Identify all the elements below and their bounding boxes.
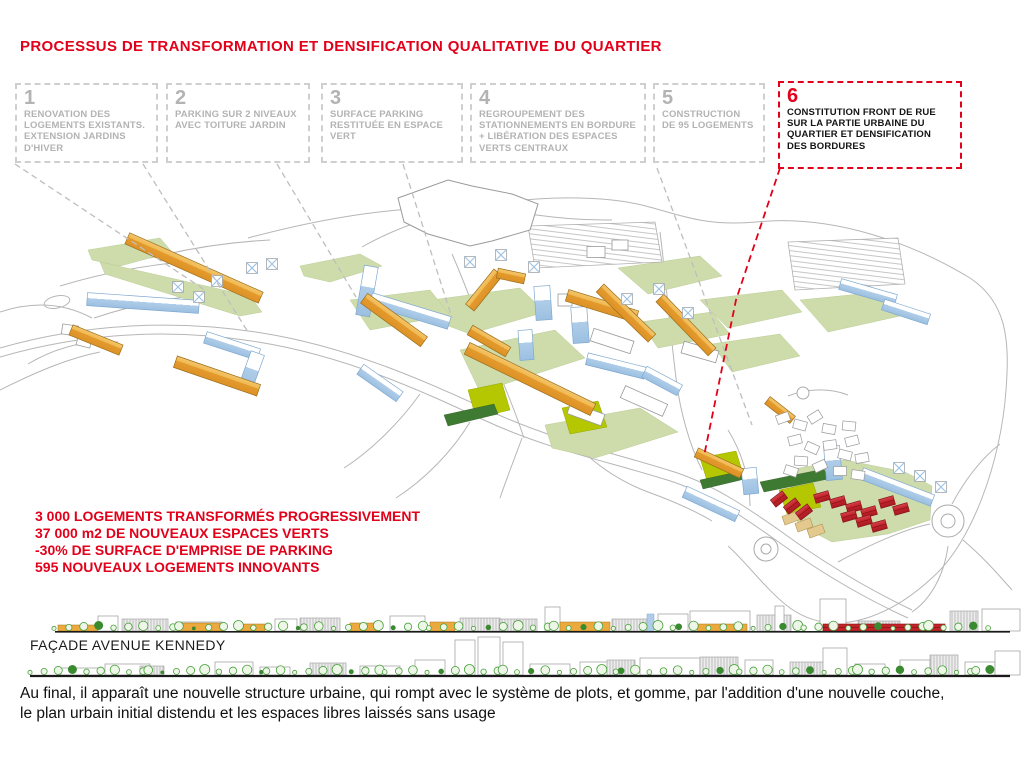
step-box-2: 2 PARKING SUR 2 NIVEAUX AVEC TOITURE JAR… xyxy=(166,83,310,163)
stat-line: 595 NOUVEAUX LOGEMENTS INNOVANTS xyxy=(35,559,420,576)
step-label: SURFACE PARKING RESTITUÉE EN ESPACE VERT xyxy=(330,109,454,143)
step-number: 4 xyxy=(479,87,637,109)
step-number: 1 xyxy=(24,87,149,109)
conclusion-text: Au final, il apparaît une nouvelle struc… xyxy=(20,684,944,723)
conclusion-line-2: le plan urbain initial distendu et les e… xyxy=(20,704,944,724)
parking-lots xyxy=(528,222,905,290)
presentation-slide: PROCESSUS DE TRANSFORMATION ET DENSIFICA… xyxy=(0,0,1024,768)
conclusion-line-1: Au final, il apparaît une nouvelle struc… xyxy=(20,684,944,704)
step-box-4: 4 REGROUPEMENT DES STATIONNEMENTS EN BOR… xyxy=(470,83,646,163)
village-cluster xyxy=(775,410,869,481)
step-box-1: 1 RENOVATION DES LOGEMENTS EXISTANTS. EX… xyxy=(15,83,158,163)
step-label: CONSTRUCTION DE 95 LOGEMENTS xyxy=(662,109,756,131)
step-label: RENOVATION DES LOGEMENTS EXISTANTS. EXTE… xyxy=(24,109,149,154)
step-number: 2 xyxy=(175,87,301,109)
step-number: 6 xyxy=(787,85,953,107)
step-label: PARKING SUR 2 NIVEAUX AVEC TOITURE JARDI… xyxy=(175,109,301,131)
step-number: 3 xyxy=(330,87,454,109)
step-box-5: 5 CONSTRUCTION DE 95 LOGEMENTS xyxy=(653,83,765,163)
step-box-6: 6 CONSTITUTION FRONT DE RUE SUR LA PARTI… xyxy=(778,81,962,169)
stat-line: 37 000 m2 DE NOUVEAUX ESPACES VERTS xyxy=(35,525,420,542)
stat-line: -30% DE SURFACE D'EMPRISE DE PARKING xyxy=(35,542,420,559)
facade-label: FAÇADE AVENUE KENNEDY xyxy=(30,637,226,653)
step-label: REGROUPEMENT DES STATIONNEMENTS EN BORDU… xyxy=(479,109,637,154)
step-number: 5 xyxy=(662,87,756,109)
stat-line: 3 000 LOGEMENTS TRANSFORMÉS PROGRESSIVEM… xyxy=(35,508,420,525)
key-figures: 3 000 LOGEMENTS TRANSFORMÉS PROGRESSIVEM… xyxy=(35,508,420,576)
page-title: PROCESSUS DE TRANSFORMATION ET DENSIFICA… xyxy=(20,38,662,55)
step-box-3: 3 SURFACE PARKING RESTITUÉE EN ESPACE VE… xyxy=(321,83,463,163)
step-label: CONSTITUTION FRONT DE RUE SUR LA PARTIE … xyxy=(787,107,953,152)
